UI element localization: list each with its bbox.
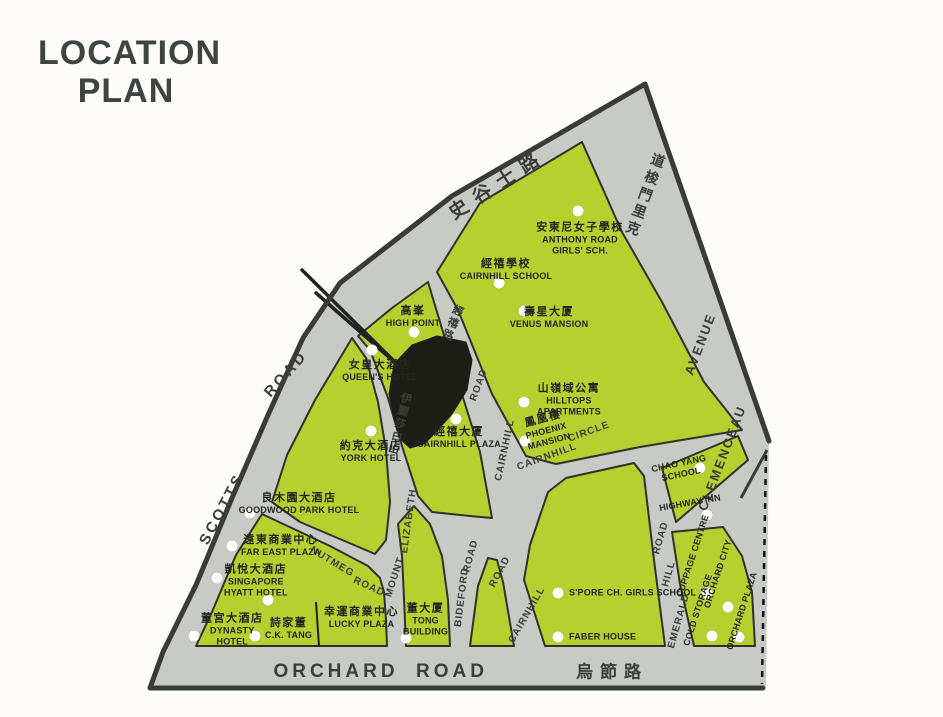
goodwood-park-hotel-name-en: GOODWOOD PARK HOTEL <box>239 505 360 516</box>
anthony-road-girls-school-name-cn: 安東尼女子學校 <box>536 222 624 235</box>
road-label-orchard-road-en-2: ROAD <box>416 661 488 683</box>
hilltops-apartments-marker <box>519 397 530 408</box>
place-high-point: 高峯HIGH POINT <box>386 305 441 329</box>
place-singapore-hyatt-hotel: 凱悅大酒店SINGAPORE HYATT HOTEL <box>224 564 288 599</box>
page-title-line1: LOCATION <box>38 34 214 72</box>
york-hotel-name-cn: 約克大酒店 <box>340 440 403 453</box>
cairnhill-school-name-en: CAIRNHILL SCHOOL <box>460 271 553 282</box>
road-label-orchard-road-en-1: ORCHARD <box>273 661 398 683</box>
place-queens-hotel: 女皇大酒店QUEEN'S HOTEL <box>342 359 418 383</box>
page-title: LOCATION PLAN <box>38 34 214 110</box>
location-plan: LOCATION PLAN 史谷士路SCOTTSROAD道梭門里克CLEMENC… <box>0 0 943 717</box>
far-east-plaza-name-cn: 遠東商業中心 <box>241 534 321 547</box>
page-title-line2: PLAN <box>38 72 214 110</box>
york-hotel-name-en: YORK HOTEL <box>340 453 403 464</box>
place-anthony-road-girls-school: 安東尼女子學校ANTHONY ROAD GIRLS' SCH. <box>536 222 624 257</box>
high-point-name-cn: 高峯 <box>386 305 441 318</box>
cold-storage-marker <box>707 631 718 642</box>
high-point-name-en: HIGH POINT <box>386 318 441 329</box>
place-ck-tang: 詩家董C.K. TANG <box>265 617 312 641</box>
queens-hotel-name-cn: 女皇大酒店 <box>342 359 418 372</box>
cairnhill-plaza-name-cn: 經禧大厦 <box>417 426 501 439</box>
ck-tang-name-cn: 詩家董 <box>265 617 312 630</box>
place-faber-house: FABER HOUSE <box>569 632 636 643</box>
place-cairnhill-plaza: 經禧大厦CAIRNHILL PLAZA <box>417 426 501 450</box>
place-tong-building: 董大厦TONG BUILDING <box>403 603 448 638</box>
singapore-hyatt-hotel-name-en: SINGAPORE HYATT HOTEL <box>224 577 288 599</box>
singapore-hyatt-hotel-marker <box>212 573 223 584</box>
place-york-hotel: 約克大酒店YORK HOTEL <box>340 440 403 464</box>
lucky-plaza-name-cn: 幸運商業中心 <box>324 606 399 619</box>
lucky-plaza-name-en: LUCKY PLAZA <box>324 619 399 630</box>
venus-mansion-name-cn: 壽星大厦 <box>510 306 589 319</box>
place-cairnhill-school: 經禧學校CAIRNHILL SCHOOL <box>460 258 553 282</box>
venus-mansion-name-en: VENUS MANSION <box>510 319 589 330</box>
hilltops-apartments-name-cn: 山嶺域公寓 <box>537 383 601 396</box>
orchard-city-marker <box>723 602 734 613</box>
faber-house-name-en: FABER HOUSE <box>569 632 636 643</box>
anthony-road-girls-school-marker <box>573 206 584 217</box>
cairnhill-plaza-name-en: CAIRNHILL PLAZA <box>417 439 501 450</box>
dynasty-hotel-marker <box>189 631 200 642</box>
dynasty-hotel-name-cn: 董宮大酒店 <box>201 613 264 626</box>
anthony-road-girls-school-name-en: ANTHONY ROAD GIRLS' SCH. <box>536 235 624 257</box>
cairnhill-school-name-cn: 經禧學校 <box>460 258 553 271</box>
place-dynasty-hotel: 董宮大酒店DYNASTY HOTEL <box>201 613 264 648</box>
place-lucky-plaza: 幸運商業中心LUCKY PLAZA <box>324 606 399 630</box>
place-goodwood-park-hotel: 良木園大酒店GOODWOOD PARK HOTEL <box>239 492 360 516</box>
queens-hotel-name-en: QUEEN'S HOTEL <box>342 372 418 383</box>
cairnhill-plaza-marker <box>451 414 462 425</box>
spore-ch-girls-school-marker <box>553 588 564 599</box>
place-far-east-plaza: 遠東商業中心FAR EAST PLAZA <box>241 534 321 558</box>
far-east-plaza-name-en: FAR EAST PLAZA <box>241 547 321 558</box>
faber-house-marker <box>553 632 564 643</box>
ck-tang-name-en: C.K. TANG <box>265 630 312 641</box>
far-east-plaza-marker <box>227 541 238 552</box>
road-label-orchard-road-cn: 烏節路 <box>576 658 648 683</box>
dynasty-hotel-name-en: DYNASTY HOTEL <box>201 626 264 648</box>
tong-building-name-cn: 董大厦 <box>403 603 448 616</box>
goodwood-park-hotel-name-cn: 良木園大酒店 <box>239 492 360 505</box>
york-hotel-marker <box>366 426 377 437</box>
queens-hotel-marker <box>367 345 378 356</box>
place-venus-mansion: 壽星大厦VENUS MANSION <box>510 306 589 330</box>
singapore-hyatt-hotel-name-cn: 凱悅大酒店 <box>224 564 288 577</box>
tong-building-name-en: TONG BUILDING <box>403 616 448 638</box>
